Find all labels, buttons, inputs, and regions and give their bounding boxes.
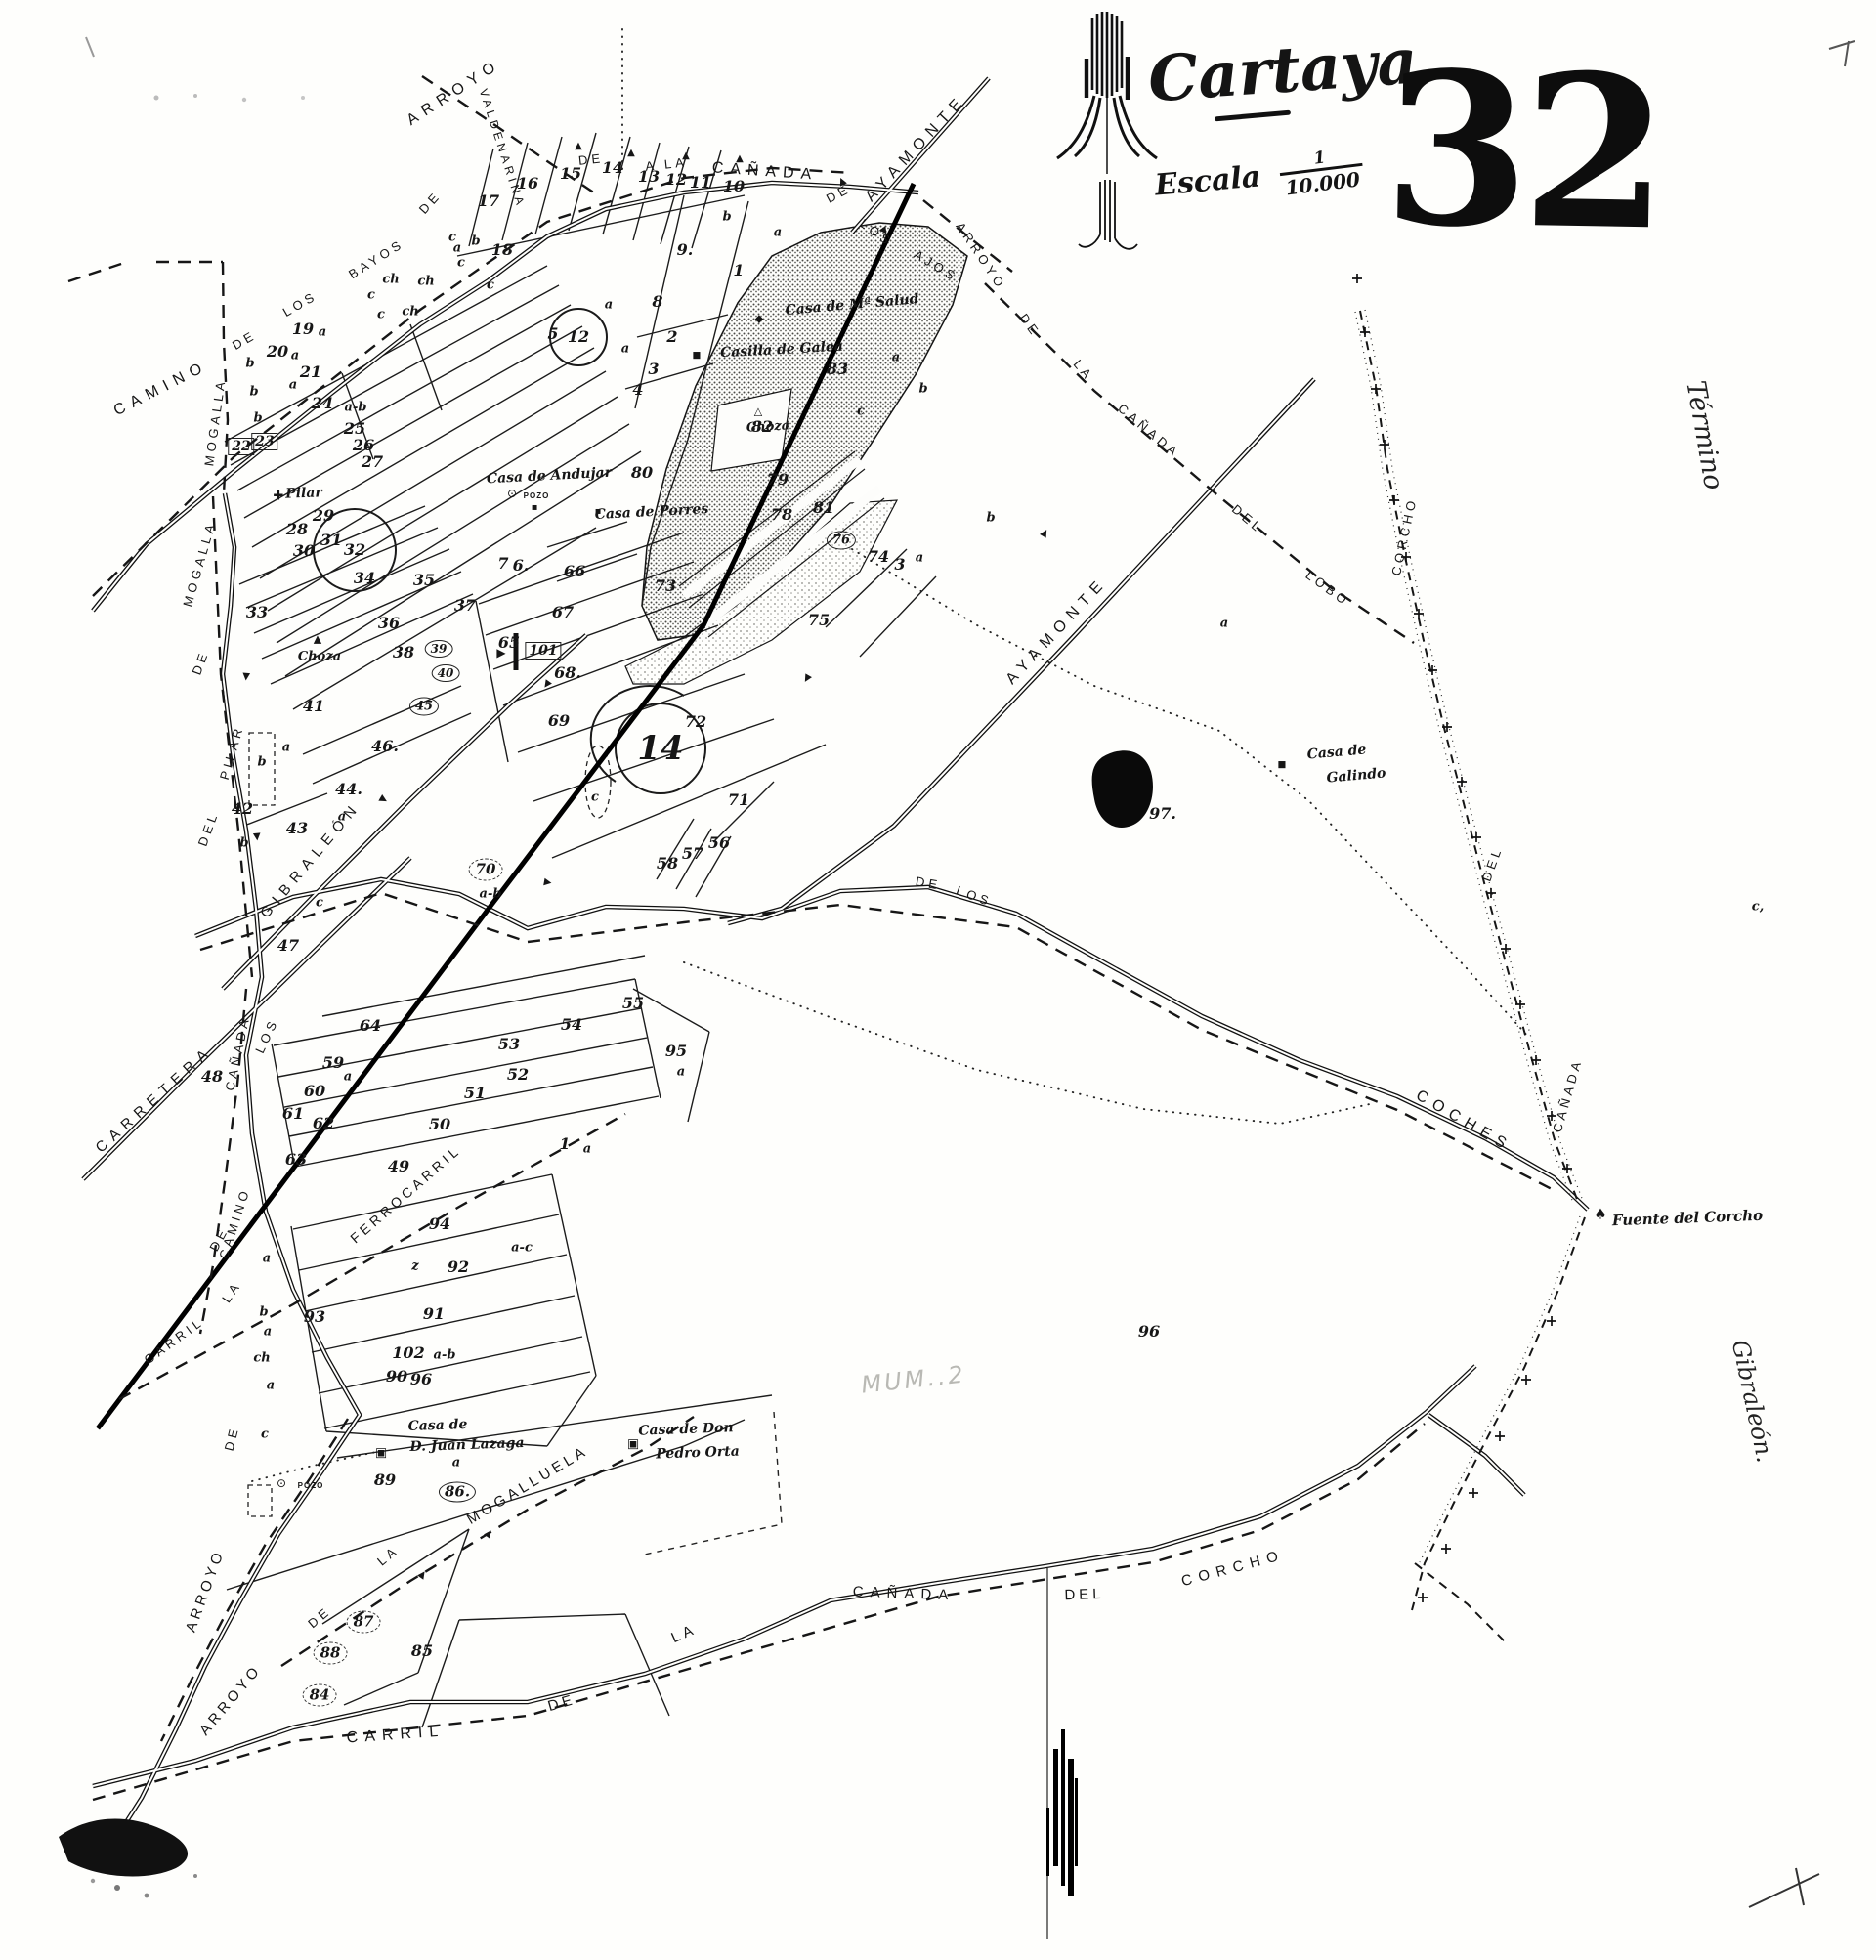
place-name-label: D. Juan Lazaga — [409, 1436, 525, 1454]
parcel-number: 85 — [411, 1643, 433, 1659]
parcel-number: 54 — [561, 1017, 582, 1033]
place-name-label: Pilar — [285, 486, 322, 500]
parcel-number: 60 — [304, 1084, 325, 1099]
parcel-number: 79 — [767, 472, 789, 488]
fountain-icon: ♠ — [1594, 1208, 1606, 1222]
parcel-number: 3 — [894, 557, 905, 573]
subparcel-letter: b — [245, 358, 254, 370]
subparcel-letter: a — [677, 1066, 685, 1079]
parcel-number: 93 — [304, 1309, 325, 1325]
subparcel-letter: b — [257, 756, 266, 769]
subparcel-letter: c — [448, 232, 456, 244]
subparcel-letter: z — [411, 1260, 418, 1273]
road-name-label: CAÑADA — [853, 1585, 956, 1603]
parcel-number: 45 — [409, 698, 439, 716]
parcel-number: 67 — [552, 605, 574, 620]
scale-fraction: 1 10.000 — [1277, 144, 1365, 200]
parcel-number: 30 — [293, 543, 315, 559]
subparcel-letter: a — [621, 343, 629, 356]
arrow-icon: ▲ — [253, 831, 262, 842]
building-icon: ◼ — [692, 350, 701, 361]
parcel-number: 64 — [360, 1018, 381, 1034]
parcel-number: 9. — [677, 242, 694, 258]
map-sheet: ARROYOCAMINODELOSBAYOSDEVALDENARINADEA L… — [0, 0, 1876, 1960]
subparcel-letter: a — [291, 350, 299, 362]
place-name-label: Pedro Orta — [656, 1445, 740, 1462]
subparcel-letter: a — [264, 1326, 272, 1339]
parcel-number: 35 — [413, 573, 435, 588]
parcel-number: 33 — [246, 605, 268, 620]
subparcel-letter: c — [367, 289, 375, 302]
road-name-label: DE — [577, 151, 604, 167]
subparcel-letter: a — [263, 1253, 271, 1265]
parcel-number: 37 — [454, 598, 476, 614]
parcel-number: 70 — [469, 859, 503, 881]
place-name-label: Choza — [298, 651, 341, 663]
arrow-icon: ▲ — [627, 149, 635, 158]
parcel-number: 14 — [602, 160, 623, 176]
municipal-boundary — [1352, 274, 1585, 1641]
parcel-number: 69 — [548, 713, 570, 729]
parcel-number: 76 — [827, 532, 856, 550]
parcel-number: 92 — [448, 1259, 469, 1275]
parcel-number: 48 — [201, 1069, 223, 1085]
well-icon: ⊙ — [507, 488, 517, 499]
parcel-number: 51 — [464, 1086, 486, 1101]
parcel-number: 91 — [423, 1306, 445, 1322]
ornament-staff — [1057, 12, 1157, 249]
parcel-number: 66 — [564, 564, 585, 579]
parcel-number: 96 — [410, 1372, 432, 1387]
arrow-icon: ▶ — [496, 647, 505, 659]
subparcel-letter: ch — [402, 306, 418, 319]
parcel-number: 78 — [771, 507, 792, 523]
parcel-number: 89 — [374, 1472, 396, 1488]
parcel-number: 55 — [622, 996, 644, 1011]
subparcel-letter: a-b — [480, 888, 502, 901]
sheet-number: 32 — [1374, 24, 1671, 277]
building-icon: ▣ — [627, 1438, 639, 1451]
subparcel-letter: c — [591, 791, 599, 804]
arrow-icon: ▲ — [541, 877, 552, 886]
subparcel-letter: c — [857, 405, 865, 418]
parcel-number: 25 — [344, 421, 365, 437]
subparcel-letter: a — [319, 326, 326, 339]
subparcel-letter: c — [261, 1428, 269, 1441]
building-icon: ▪ — [595, 507, 602, 517]
parcel-number: 49 — [388, 1159, 409, 1174]
parcel-number: 28 — [286, 522, 308, 537]
parcel-number: 10 — [723, 179, 745, 194]
road-name-label: DE — [915, 874, 942, 891]
parcel-number: 13 — [638, 169, 660, 185]
parcel-number: 97. — [1149, 806, 1176, 822]
parcel-number: 47 — [277, 938, 299, 954]
hut-icon: ▲ — [314, 634, 321, 645]
subparcel-letter: a — [1220, 618, 1228, 630]
parcel-number: 24 — [312, 396, 333, 411]
parcel-number: 31 — [320, 533, 342, 548]
parcel-number: 20 — [267, 344, 288, 360]
parcel-number: 71 — [728, 792, 749, 808]
parcel-number: 12 — [665, 172, 687, 188]
subparcel-letter: a — [605, 299, 613, 312]
parcel-number: 23 — [251, 433, 277, 450]
parcel-number: 94 — [429, 1216, 450, 1232]
parcel-number: 52 — [507, 1067, 529, 1083]
subparcel-letter: a — [774, 227, 782, 239]
subparcel-letter: b — [259, 1306, 268, 1319]
subparcel-letter: b — [253, 412, 262, 425]
parcel-number: 4 — [632, 382, 643, 398]
parcel-number: 46. — [371, 739, 399, 754]
building-icon: ◆ — [755, 314, 763, 324]
parcel-number: 80 — [631, 465, 653, 481]
well-label: POZO — [524, 492, 550, 500]
parcel-number: 5 — [547, 326, 558, 342]
parcel-number: 21 — [300, 364, 321, 380]
building-icon: ◼ — [1277, 759, 1286, 770]
building-icon: ▣ — [375, 1447, 387, 1460]
parcel-number: 1 — [733, 263, 744, 278]
subparcel-letter: a — [267, 1380, 275, 1392]
parcel-number: 7 — [497, 556, 508, 572]
parcel-number: 96 — [1138, 1324, 1160, 1340]
subparcel-letter: b — [471, 235, 480, 248]
arrow-icon: ▲ — [575, 142, 582, 151]
subparcel-letter: c, — [1752, 901, 1764, 914]
subparcel-letter: a — [344, 1071, 352, 1084]
parcel-number: 38 — [393, 645, 414, 660]
parcel-number: 11 — [690, 175, 711, 191]
parcel-number: 27 — [362, 454, 383, 470]
parcel-number: 95 — [665, 1044, 687, 1059]
parcel-number: 84 — [303, 1684, 337, 1707]
subparcel-letter: a-b — [345, 402, 367, 414]
parcel-number: 32 — [344, 542, 365, 558]
subparcel-letter: b — [918, 383, 927, 396]
parcel-number: 15 — [560, 166, 581, 182]
subparcel-letter: a — [583, 1143, 591, 1156]
map-linework — [0, 0, 1876, 1960]
subparcel-letter: a — [282, 742, 290, 754]
parcel-number: 62 — [313, 1116, 334, 1131]
parcel-number: 50 — [429, 1117, 450, 1132]
parcel-number: 101 — [525, 642, 561, 660]
arrow-icon: ▲ — [242, 671, 251, 682]
parcel-number: 3 — [648, 362, 659, 377]
subparcel-letter: a-b — [434, 1349, 456, 1362]
parcel-number: 58 — [657, 856, 678, 872]
parcel-number: 74 — [868, 549, 889, 565]
parcel-number: 73 — [655, 578, 676, 594]
parcel-number: 81 — [813, 500, 834, 516]
parcel-number: 61 — [282, 1106, 304, 1122]
parcel-number: 83 — [827, 362, 848, 377]
parcel-number: 2 — [666, 329, 677, 345]
arrow-icon: ▲ — [682, 151, 690, 161]
subparcel-letter: a-c — [511, 1242, 533, 1255]
parcel-number: 68. — [554, 665, 581, 681]
parcel-number: 90 — [386, 1369, 407, 1385]
parcel-number: 86. — [439, 1482, 476, 1503]
parcel-number: 53 — [498, 1037, 520, 1052]
subparcel-letter: a — [289, 379, 297, 392]
parcel-number: 19 — [292, 321, 314, 337]
road-name-label: DEL — [1064, 1587, 1105, 1602]
parcel-number: 63 — [285, 1152, 307, 1168]
place-name-label: Casa de — [407, 1418, 467, 1433]
subparcel-letter: a — [892, 352, 900, 364]
parcel-number: 87 — [347, 1611, 381, 1634]
parcel-number: 88 — [314, 1642, 348, 1665]
parcel-number: 72 — [685, 714, 706, 730]
parcel-number: 16 — [517, 176, 538, 192]
subparcel-letter: a — [916, 552, 923, 565]
parcel-number: 39 — [425, 640, 453, 658]
parcel-number: 29 — [313, 508, 334, 524]
parcel-number: 8 — [652, 294, 662, 310]
parcel-number: 12 — [568, 329, 589, 345]
subparcel-letter: b — [249, 386, 258, 399]
parcel-number: 17 — [478, 193, 499, 209]
building-icon: ▪ — [532, 503, 538, 513]
parcel-number: 82 — [751, 419, 773, 435]
subparcel-letter: ch — [253, 1352, 270, 1365]
subparcel-letter: c — [316, 897, 323, 910]
parcel-number: 57 — [682, 846, 703, 862]
well-label: POZO — [298, 1482, 324, 1490]
parcel-number: 56 — [708, 835, 730, 851]
subparcel-letter: ch — [382, 274, 399, 286]
parcel-number: 26 — [353, 438, 374, 453]
subparcel-letter: a — [452, 1457, 460, 1470]
hut-icon: △ — [754, 406, 762, 417]
subparcel-letter: c — [487, 279, 494, 292]
pilar-cross-icon: ✚ — [274, 490, 284, 503]
parcel-number: 6. — [513, 558, 530, 574]
subparcel-letter: a — [338, 811, 346, 824]
parcel-number: 44. — [335, 782, 362, 797]
subparcel-letter: c — [457, 257, 465, 270]
parcel-number: 75 — [808, 613, 830, 628]
arrow-icon: ▲ — [736, 154, 744, 164]
well-icon: ⊙ — [277, 1477, 286, 1489]
parcel-number: 14 — [637, 732, 683, 765]
subparcel-letter: c — [377, 309, 385, 321]
subparcel-letter: ch — [417, 276, 434, 288]
parcel-number: 1 — [559, 1136, 570, 1152]
parcel-number: 102 — [392, 1345, 424, 1361]
parcel-number: 41 — [303, 699, 324, 714]
subparcel-letter: b — [239, 837, 248, 850]
parcel-number: 43 — [286, 821, 308, 836]
parcel-number: 36 — [378, 616, 400, 631]
subparcel-letter: b — [722, 211, 731, 224]
parcel-number: 40 — [432, 664, 460, 682]
subparcel-letter: b — [986, 512, 995, 525]
parcel-number: 18 — [491, 242, 513, 258]
parcel-number: 59 — [322, 1055, 344, 1071]
parcel-number: 42 — [232, 801, 253, 817]
parcel-number: 34 — [354, 571, 375, 586]
place-name-label: Casa de Don — [638, 1421, 734, 1437]
